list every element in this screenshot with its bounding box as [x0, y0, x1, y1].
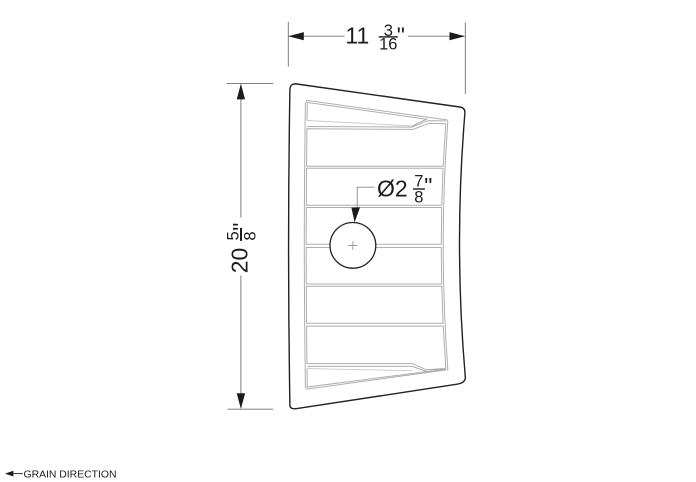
svg-text:20: 20 [227, 248, 253, 274]
svg-text:8: 8 [414, 188, 423, 206]
svg-text:16: 16 [379, 35, 397, 53]
svg-text:": " [424, 173, 432, 199]
svg-text:8: 8 [241, 231, 259, 240]
svg-text:": " [228, 223, 254, 231]
svg-text:Ø2: Ø2 [377, 175, 408, 201]
svg-text:GRAIN DIRECTION: GRAIN DIRECTION [24, 470, 117, 481]
svg-text:": " [397, 22, 405, 48]
svg-text:5: 5 [224, 231, 242, 240]
svg-text:11: 11 [345, 22, 369, 48]
